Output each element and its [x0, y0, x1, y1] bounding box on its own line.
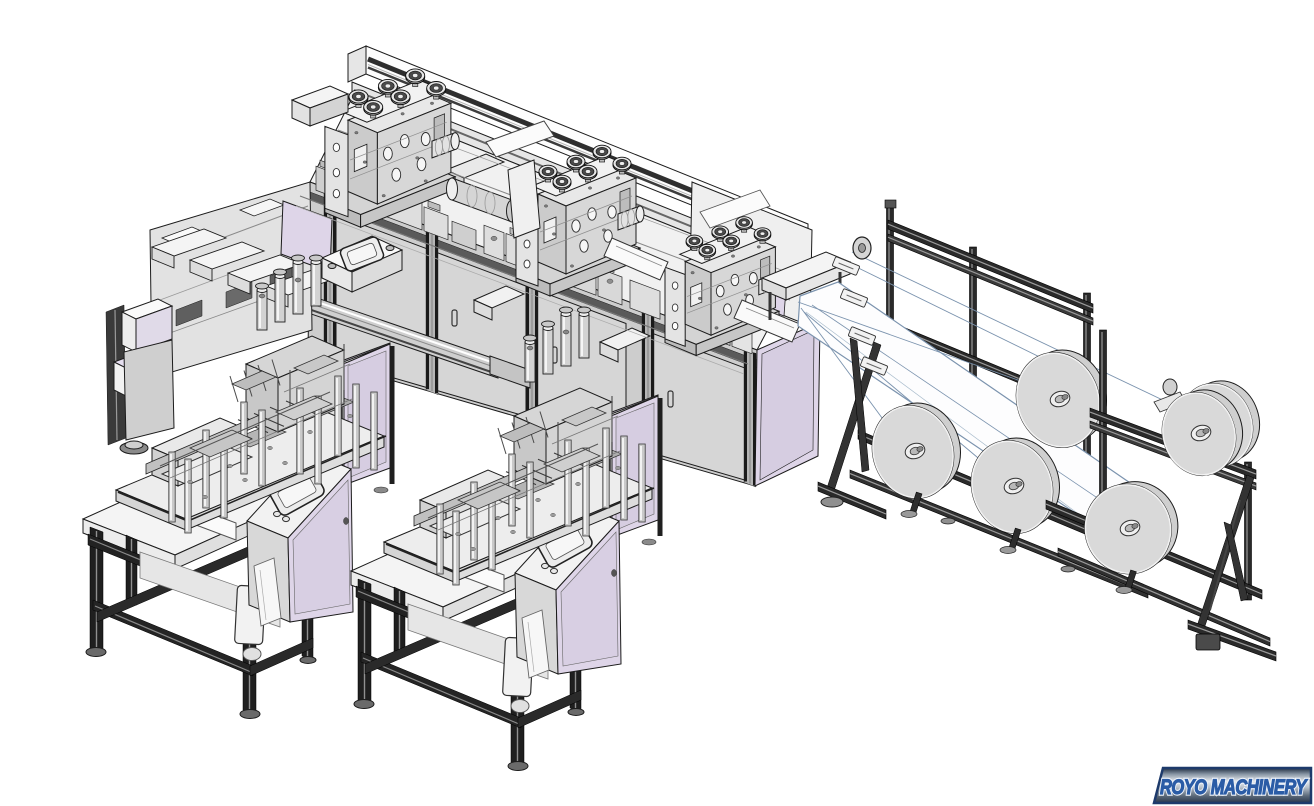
svg-text:ROYO MACHINERY: ROYO MACHINERY [1160, 776, 1308, 799]
